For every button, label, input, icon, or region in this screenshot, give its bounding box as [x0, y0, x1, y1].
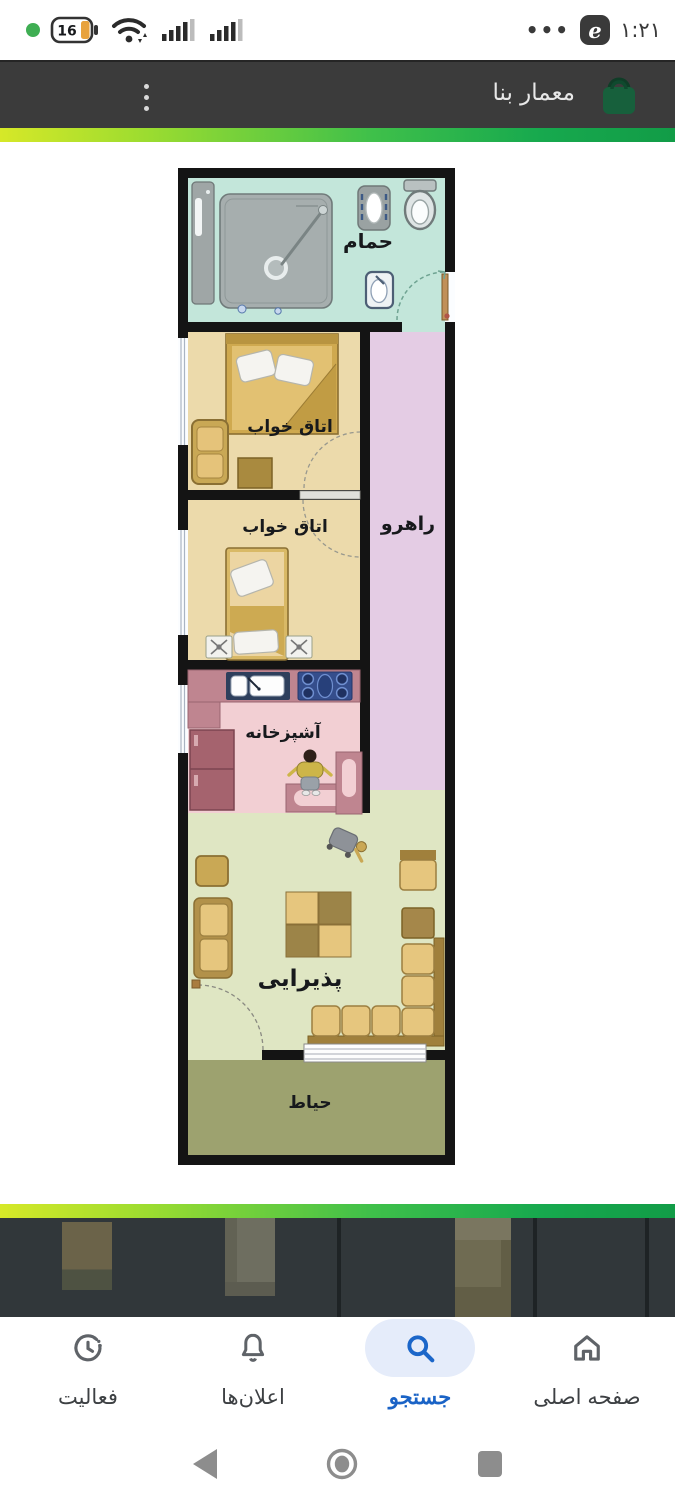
window-marks [178, 338, 188, 753]
nav-label-home: صفحه اصلی [533, 1385, 640, 1410]
gallery-separator [337, 1218, 341, 1317]
status-bar-right: ••• e ۱:۲۱ [526, 0, 661, 60]
overflow-menu-button[interactable] [136, 78, 156, 116]
nav-item-search[interactable]: جستجو [345, 1317, 495, 1421]
label-living: پذیرایی [258, 966, 343, 992]
nav-label-activity: فعالیت [58, 1385, 118, 1410]
clock-time: ۱:۲۱ [620, 18, 661, 42]
phone-screen: 16 [0, 0, 675, 1500]
search-icon [365, 1319, 475, 1377]
floor-plan-thumbnail-1[interactable] [62, 1222, 112, 1290]
android-home-button[interactable] [318, 1440, 366, 1488]
eitaa-app-badge-icon: e [580, 15, 610, 45]
signal-bars-icon [160, 14, 198, 46]
status-bar-left: 16 [26, 0, 246, 60]
label-yard: حیاط [288, 1093, 331, 1113]
label-bedroom-2: اتاق خواب [242, 517, 328, 537]
app-title: معمار بنا [493, 80, 576, 106]
android-navigation-bar [0, 1424, 675, 1500]
notification-dots-icon: ••• [526, 18, 570, 42]
wifi-icon [110, 13, 150, 47]
app-header: معمار بنا [0, 60, 675, 130]
battery-percent: 16 [57, 24, 76, 40]
label-hallway: راهرو [380, 513, 435, 535]
bell-icon [198, 1319, 308, 1377]
nav-item-home[interactable]: صفحه اصلی [512, 1317, 662, 1421]
signal-bars-icon-2 [208, 14, 246, 46]
android-recents-button[interactable] [466, 1440, 514, 1488]
nav-item-activity[interactable]: فعالیت [13, 1317, 163, 1421]
home-icon [532, 1319, 642, 1377]
gallery-separator [533, 1218, 537, 1317]
gallery-strip [0, 1218, 675, 1317]
floor-plan-image[interactable]: حمام اتاق خواب اتاق خواب راهرو آشپزخانه … [178, 168, 455, 1168]
android-back-button[interactable] [182, 1440, 230, 1488]
header-gradient-bar [0, 128, 675, 142]
strip-gradient-bar [0, 1204, 675, 1218]
shopping-bag-icon[interactable] [595, 74, 643, 118]
sliding-door [300, 491, 360, 499]
nav-label-notifications: اعلان‌ها [221, 1385, 285, 1410]
label-bedroom-1: اتاق خواب [247, 417, 333, 437]
status-bar: 16 [0, 0, 675, 60]
privacy-dot-icon [26, 23, 40, 37]
label-bathroom: حمام [343, 229, 393, 253]
bottom-navigation: فعالیت اعلان‌ها جستجو [0, 1317, 675, 1424]
nav-item-notifications[interactable]: اعلان‌ها [178, 1317, 328, 1421]
floor-plan-thumbnail-3[interactable] [455, 1218, 511, 1317]
battery-icon: 16 [50, 14, 100, 46]
floor-plan-thumbnail-2[interactable] [225, 1218, 275, 1296]
activity-clock-icon [33, 1319, 143, 1377]
label-kitchen: آشپزخانه [245, 721, 322, 743]
room-hallway [370, 332, 445, 790]
gallery-separator [645, 1218, 649, 1317]
nav-label-search: جستجو [389, 1385, 451, 1410]
